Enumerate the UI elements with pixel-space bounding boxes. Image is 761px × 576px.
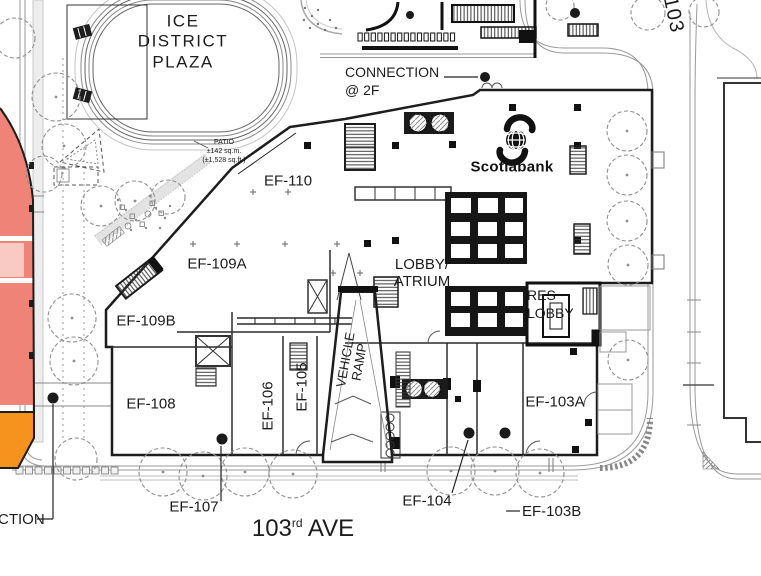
stair	[290, 343, 307, 370]
tree	[631, 0, 665, 30]
tree	[0, 18, 35, 58]
stair	[574, 224, 590, 254]
loading-dock	[320, 0, 598, 58]
rink-gate	[73, 24, 93, 40]
reference-dot	[48, 393, 59, 404]
rink-gate	[73, 87, 93, 103]
reference-dot	[406, 11, 414, 19]
tree	[546, 0, 574, 20]
reference-dot	[570, 8, 580, 18]
reference-dot	[217, 434, 228, 445]
paver-band	[16, 467, 118, 474]
reference-dot	[500, 428, 511, 439]
dentil-row	[358, 33, 455, 41]
site-plan: ICE DISTRICT PLAZA PATIO ±142 sq.m. (±1,…	[0, 0, 761, 576]
mech-equipment	[396, 352, 410, 407]
building-orange-wedge	[0, 412, 34, 468]
reference-dot	[464, 428, 475, 439]
elevator-core	[445, 192, 527, 336]
plan-linework	[0, 0, 761, 576]
tree	[26, 156, 62, 192]
rink-oval	[67, 0, 297, 150]
plaza-building-outline	[67, 5, 147, 119]
adjacent-building-west	[0, 108, 34, 468]
stair	[570, 146, 586, 174]
tree	[689, 0, 719, 27]
reference-dot	[480, 72, 490, 82]
adjacent-block-east	[703, 78, 761, 469]
